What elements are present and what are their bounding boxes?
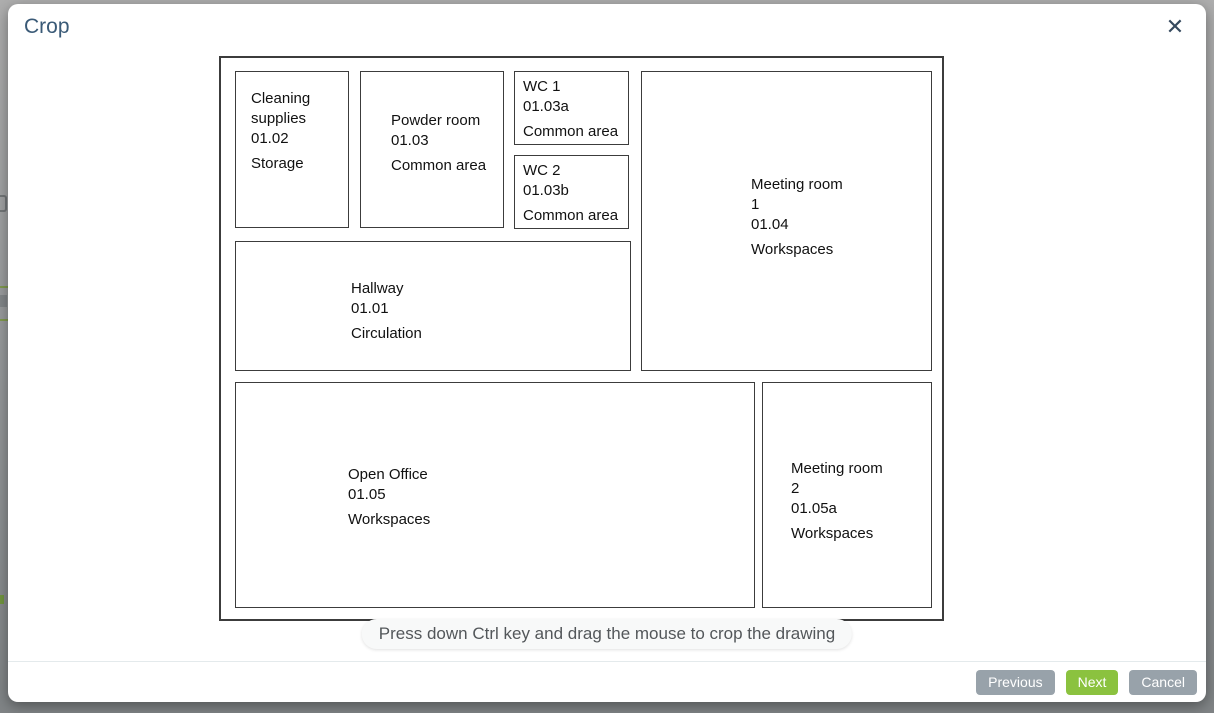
room-code: 01.05a bbox=[791, 499, 883, 519]
background-page-artifact bbox=[0, 286, 8, 288]
room-code: 01.03 bbox=[391, 131, 503, 151]
floor-plan-drawing[interactable]: Cleaning supplies 01.02 Storage Powder r… bbox=[219, 56, 944, 621]
room-code: 01.04 bbox=[751, 215, 843, 235]
room-category: Common area bbox=[523, 206, 627, 226]
room-name: Open Office bbox=[348, 465, 458, 485]
cancel-button[interactable]: Cancel bbox=[1129, 670, 1197, 695]
room-name: Powder room bbox=[391, 111, 503, 131]
room-powder-room: Powder room 01.03 Common area bbox=[360, 71, 504, 228]
room-name: WC 1 bbox=[523, 77, 627, 97]
previous-button[interactable]: Previous bbox=[976, 670, 1054, 695]
room-open-office: Open Office 01.05 Workspaces bbox=[235, 382, 755, 608]
room-cleaning-supplies: Cleaning supplies 01.02 Storage bbox=[235, 71, 349, 228]
room-code: 01.05 bbox=[348, 485, 458, 505]
room-wc-1: WC 1 01.03a Common area bbox=[514, 71, 629, 145]
room-category: Storage bbox=[251, 154, 329, 174]
room-category: Common area bbox=[523, 122, 627, 142]
room-code: 01.03a bbox=[523, 97, 627, 117]
background-page-artifact bbox=[0, 295, 7, 307]
close-icon[interactable]: ✕ bbox=[1162, 14, 1188, 40]
dialog-title: Crop bbox=[24, 15, 70, 39]
room-category: Circulation bbox=[351, 324, 461, 344]
room-hallway: Hallway 01.01 Circulation bbox=[235, 241, 631, 371]
room-code: 01.03b bbox=[523, 181, 627, 201]
crop-instruction-tooltip: Press down Ctrl key and drag the mouse t… bbox=[362, 619, 852, 649]
room-category: Workspaces bbox=[791, 524, 883, 544]
room-meeting-room-1: Meeting room 1 01.04 Workspaces bbox=[641, 71, 932, 371]
dialog-footer: Previous Next Cancel bbox=[8, 662, 1206, 702]
background-page-artifact bbox=[0, 195, 7, 212]
room-category: Workspaces bbox=[751, 240, 843, 260]
room-meeting-room-2: Meeting room 2 01.05a Workspaces bbox=[762, 382, 932, 608]
room-name: Meeting room 1 bbox=[751, 175, 843, 215]
room-name: Hallway bbox=[351, 279, 461, 299]
room-wc-2: WC 2 01.03b Common area bbox=[514, 155, 629, 229]
room-name: Cleaning supplies bbox=[251, 89, 329, 129]
crop-dialog: Crop ✕ Cleaning supplies 01.02 Storage P… bbox=[8, 4, 1206, 702]
room-code: 01.01 bbox=[351, 299, 461, 319]
background-page-artifact bbox=[0, 319, 8, 321]
background-page-artifact bbox=[0, 595, 4, 604]
room-name: Meeting room 2 bbox=[791, 459, 883, 499]
room-category: Common area bbox=[391, 156, 503, 176]
room-name: WC 2 bbox=[523, 161, 627, 181]
room-code: 01.02 bbox=[251, 129, 329, 149]
next-button[interactable]: Next bbox=[1066, 670, 1119, 695]
room-category: Workspaces bbox=[348, 510, 458, 530]
